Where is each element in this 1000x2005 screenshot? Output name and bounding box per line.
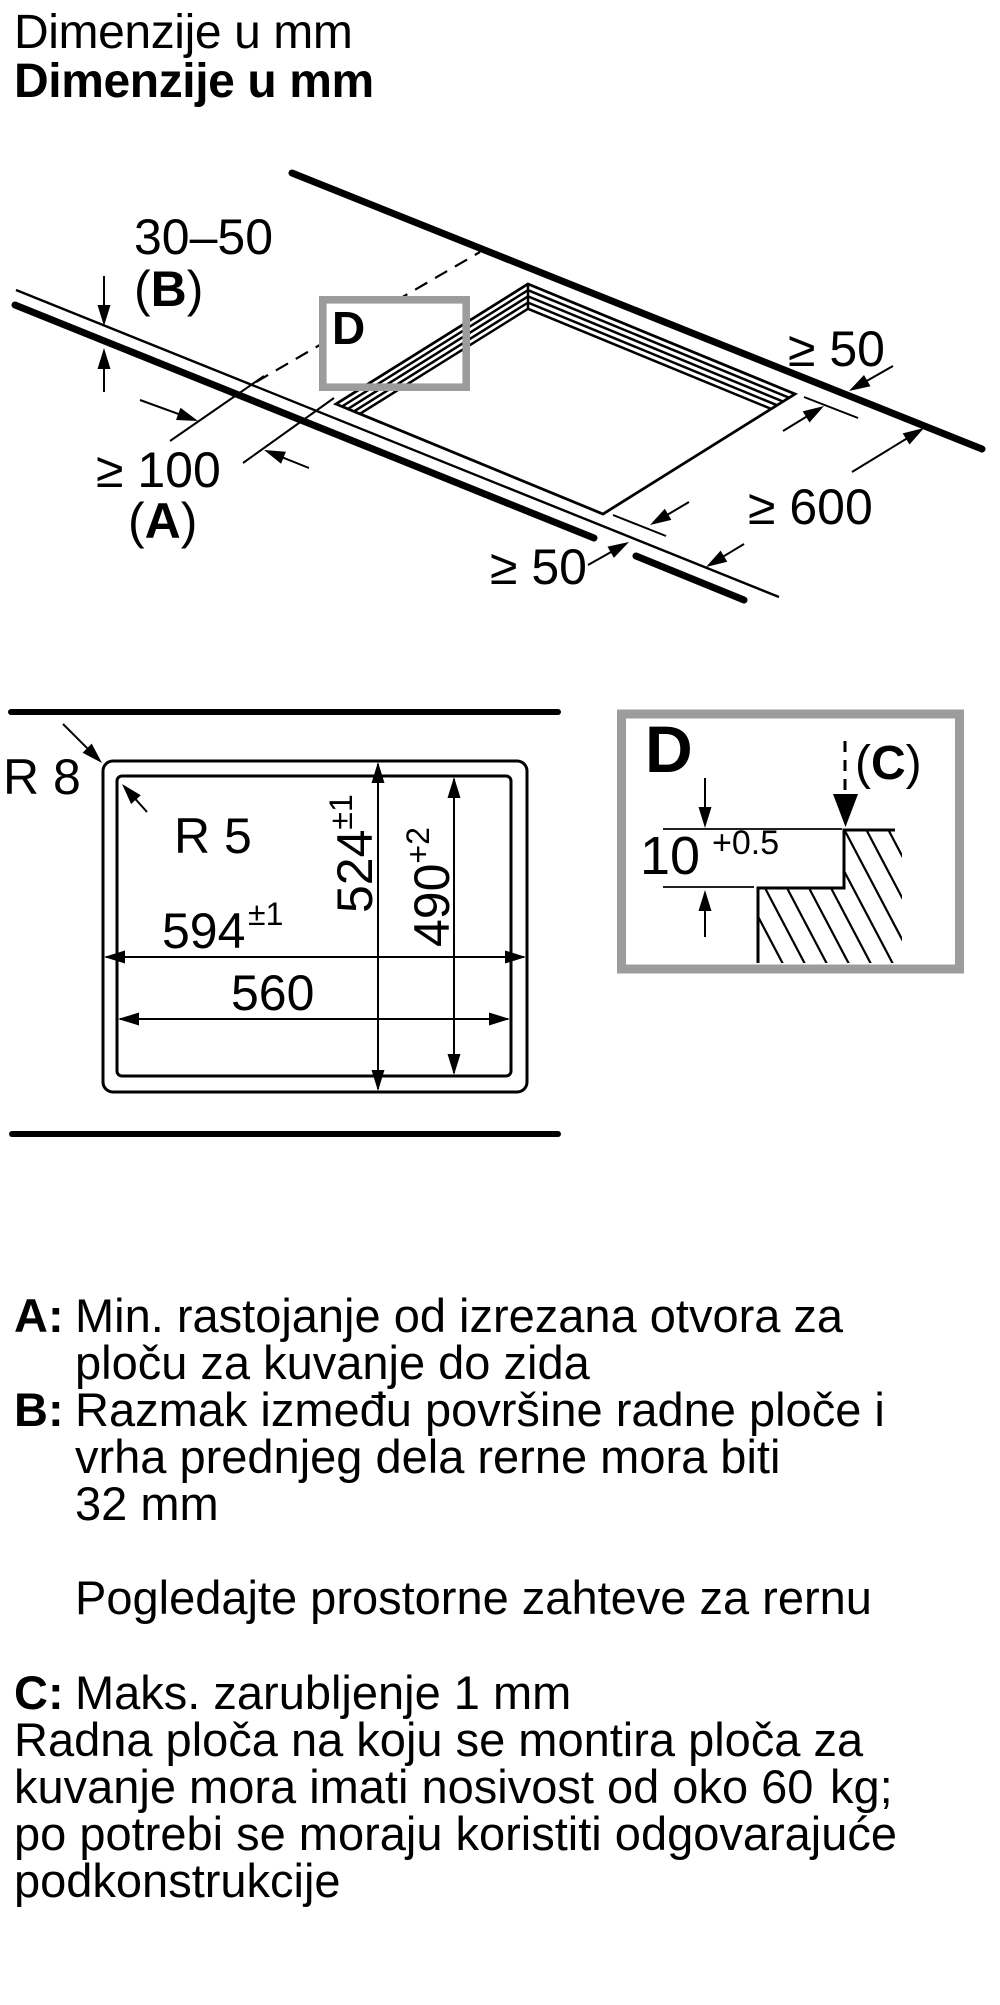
svg-text:kuvanje mora imati nosivost od: kuvanje mora imati nosivost od oko 60 — [14, 1760, 813, 1813]
svg-text:594: 594 — [162, 903, 245, 959]
svg-text:Dimenzije u mm: Dimenzije u mm — [14, 6, 352, 59]
svg-text:R 8: R 8 — [3, 749, 81, 805]
svg-text:(C): (C) — [855, 737, 922, 790]
svg-text:≥ 100: ≥ 100 — [96, 442, 221, 498]
svg-text:Pogledajte prostorne zahteve z: Pogledajte prostorne zahteve za rernu — [75, 1571, 872, 1624]
svg-text:Radna ploča na koju se montira: Radna ploča na koju se montira ploča za — [14, 1713, 864, 1766]
svg-text:30–50: 30–50 — [134, 209, 273, 265]
svg-text:≥ 50: ≥ 50 — [490, 539, 587, 595]
svg-text:32 mm: 32 mm — [75, 1477, 219, 1530]
svg-text:ploču za kuvanje do zida: ploču za kuvanje do zida — [75, 1336, 591, 1389]
svg-text:Min. rastojanje od izrezana ot: Min. rastojanje od izrezana otvora za — [75, 1289, 844, 1342]
svg-text:B:: B: — [14, 1383, 64, 1436]
svg-text:D: D — [645, 712, 693, 786]
svg-text:(A): (A) — [128, 493, 197, 549]
svg-text:R 5: R 5 — [174, 808, 252, 864]
svg-text:C:: C: — [14, 1666, 64, 1719]
svg-text:≥ 600: ≥ 600 — [748, 479, 873, 535]
svg-text:≥ 50: ≥ 50 — [788, 321, 885, 377]
svg-text:(B): (B) — [134, 261, 203, 317]
svg-text:vrha prednjeg dela rerne mora: vrha prednjeg dela rerne mora biti — [75, 1430, 780, 1483]
svg-text:Razmak između površine radne p: Razmak između površine radne ploče i — [75, 1383, 885, 1436]
svg-text:Dimenzije u mm: Dimenzije u mm — [14, 55, 374, 108]
svg-text:524±1: 524±1 — [323, 794, 383, 913]
svg-text:po potrebi se moraju koristiti: po potrebi se moraju koristiti odgovaraj… — [14, 1807, 897, 1860]
svg-text:10: 10 — [640, 826, 700, 886]
svg-text:560: 560 — [231, 965, 314, 1021]
svg-text:A:: A: — [14, 1289, 64, 1342]
svg-text:+0.5: +0.5 — [712, 824, 779, 862]
svg-text:490+2: 490+2 — [400, 827, 460, 947]
svg-text:podkonstrukcije: podkonstrukcije — [14, 1854, 341, 1907]
svg-text:Maks. zarubljenje 1 mm: Maks. zarubljenje 1 mm — [75, 1666, 571, 1719]
svg-text:±1: ±1 — [248, 896, 283, 932]
svg-text:kg;: kg; — [830, 1760, 893, 1813]
svg-text:D: D — [332, 302, 365, 354]
